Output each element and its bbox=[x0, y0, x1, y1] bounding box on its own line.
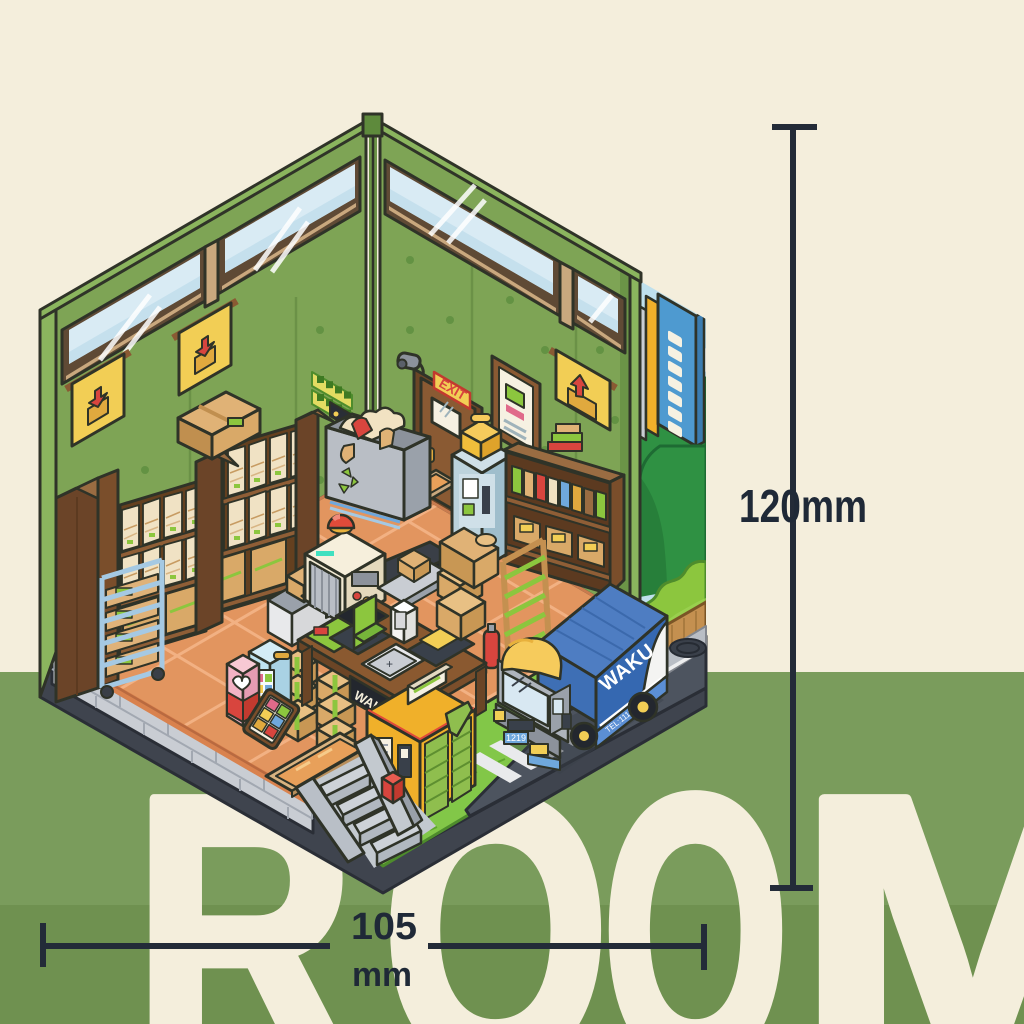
svg-text:mm: mm bbox=[352, 956, 412, 994]
svg-text:120mm: 120mm bbox=[739, 480, 867, 532]
svg-text:+: + bbox=[386, 657, 393, 671]
svg-text:M: M bbox=[796, 716, 1024, 1024]
svg-text:1219: 1219 bbox=[506, 733, 526, 743]
svg-text:O: O bbox=[602, 716, 789, 1024]
svg-text:105: 105 bbox=[351, 906, 417, 948]
